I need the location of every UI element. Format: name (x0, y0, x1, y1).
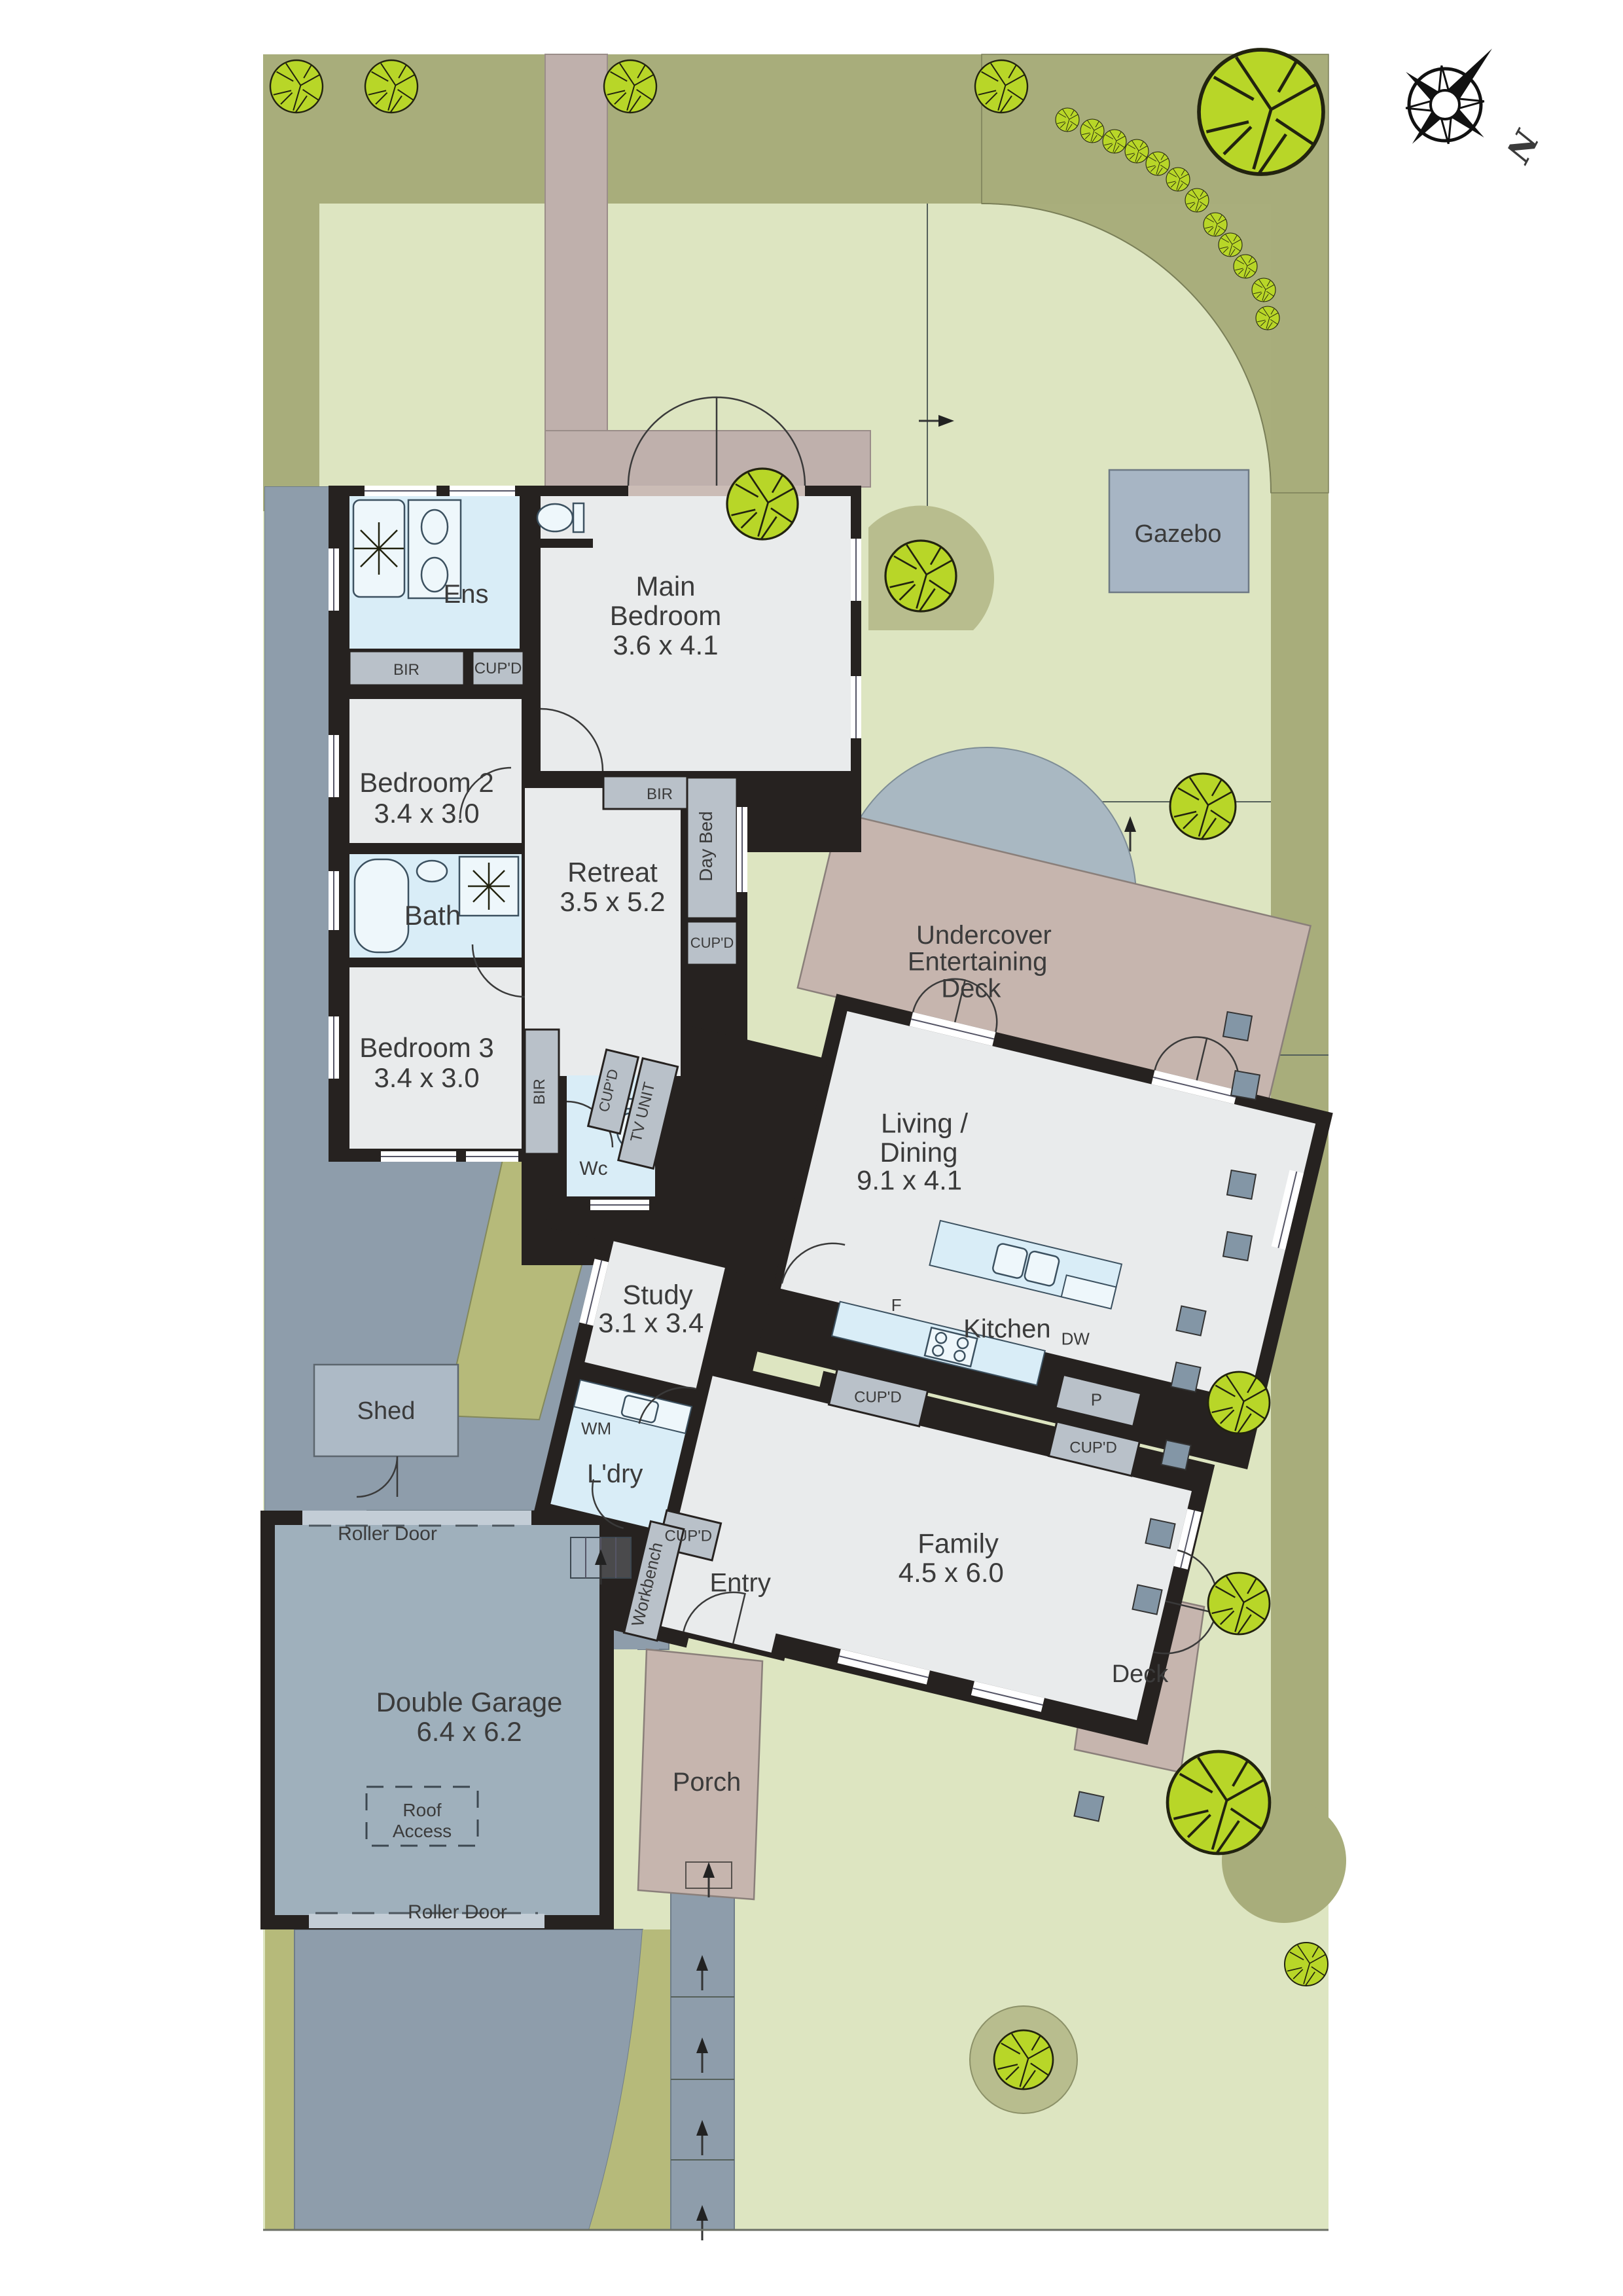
tree-icon (270, 60, 323, 113)
shrub-icon (1256, 306, 1279, 330)
shrub-icon (1125, 139, 1149, 163)
tree-icon (727, 469, 798, 539)
room-label-ens: Ens (444, 580, 489, 609)
room-label-retreat: Retreat (567, 857, 658, 888)
room-dims-study: 3.1 x 3.4 (598, 1307, 704, 1338)
room-label-living2: Dining (880, 1137, 957, 1168)
tree-icon (365, 60, 418, 113)
label-undercover2: Entertaining (908, 948, 1047, 977)
label-bir: BIR (393, 661, 419, 679)
floor-plan-page: Ens Main Bedroom 3.6 x 4.1 BIR CUP'D Bed… (0, 0, 1623, 2296)
tree-icon (1208, 1372, 1270, 1433)
garden-path (545, 54, 607, 486)
room-dims-bedroom3: 3.4 x 3.0 (374, 1062, 479, 1093)
label-bir: BIR (647, 785, 673, 803)
garden-border-left (263, 204, 319, 511)
room-dims-family: 4.5 x 6.0 (899, 1557, 1004, 1588)
shrub-icon (1103, 130, 1126, 153)
room-dims-living: 9.1 x 4.1 (857, 1165, 962, 1196)
shrub-icon (1080, 119, 1104, 143)
tree-icon (1170, 774, 1236, 839)
driveway-verge (265, 1929, 294, 2230)
tree-icon (604, 60, 656, 113)
room-label-kitchen: Kitchen (963, 1315, 1050, 1344)
room-label-porch: Porch (673, 1768, 741, 1797)
shrub-icon (1252, 278, 1275, 302)
room-label-bath: Bath (404, 900, 461, 931)
shrub-icon (1234, 255, 1257, 278)
tree-icon (994, 2030, 1053, 2089)
room-label-main-bedroom: Main (635, 571, 695, 601)
label-cupd: CUP'D (1069, 1439, 1117, 1456)
garage-stairs (571, 1537, 631, 1585)
north-label: N (1497, 122, 1547, 170)
label-gazebo: Gazebo (1134, 520, 1221, 548)
shrub-icon (1204, 213, 1227, 236)
tree-icon (1208, 1573, 1270, 1634)
tree-icon (1199, 50, 1323, 174)
label-undercover3: Deck (941, 975, 1001, 1003)
label-roof-access2: Access (393, 1821, 452, 1841)
room-label-laundry: L'dry (587, 1460, 643, 1488)
room-dims-main-bedroom: 3.6 x 4.1 (613, 630, 718, 660)
shrub-icon (1166, 168, 1190, 191)
label-cupd: CUP'D (474, 660, 522, 677)
rear-path (545, 431, 870, 487)
room-label-living1: Living / (881, 1108, 968, 1139)
driveway (294, 1929, 643, 2230)
tree-icon (975, 60, 1027, 113)
room-label-wc: Wc (579, 1158, 607, 1179)
compass-rose (1366, 13, 1535, 183)
label-bir: BIR (531, 1079, 548, 1105)
label-fridge: F (891, 1295, 902, 1315)
room-label-garage: Double Garage (376, 1687, 563, 1717)
label-wm: WM (581, 1418, 611, 1438)
room-dims-retreat: 3.5 x 5.2 (560, 886, 665, 917)
label-roller-door-top: Roller Door (338, 1523, 437, 1545)
shrub-icon (1146, 152, 1169, 175)
label-dw: DW (1061, 1329, 1090, 1348)
room-label-bedroom2: Bedroom 2 (359, 767, 493, 798)
site-plan: Ens Main Bedroom 3.6 x 4.1 BIR CUP'D Bed… (0, 0, 1623, 2296)
tree-icon (885, 541, 956, 611)
tree-icon (1168, 1751, 1270, 1854)
room-dims-garage: 6.4 x 6.2 (416, 1716, 522, 1747)
label-cupd: CUP'D (854, 1388, 902, 1406)
label-undercover1: Undercover (916, 921, 1052, 950)
room-label-study: Study (622, 1280, 692, 1310)
label-roof-access: Roof (402, 1800, 441, 1820)
label-shed: Shed (357, 1397, 416, 1425)
shrub-icon (1219, 233, 1242, 257)
label-cupd: CUP'D (690, 935, 734, 951)
label-day-bed: Day Bed (696, 811, 716, 881)
shrub-icon (1056, 108, 1079, 132)
room-dims-bedroom2: 3.4 x 3.0 (374, 798, 479, 829)
room-label-family: Family (918, 1528, 999, 1558)
label-roller-door-bottom: Roller Door (408, 1901, 507, 1923)
label-pantry: P (1091, 1390, 1102, 1409)
room-label-bedroom3: Bedroom 3 (359, 1032, 493, 1063)
label-deck: Deck (1112, 1660, 1169, 1688)
tree-icon (1285, 1943, 1328, 1986)
shrub-icon (1185, 188, 1209, 212)
room-label-entry: Entry (709, 1568, 770, 1597)
room-label-main-bedroom2: Bedroom (610, 600, 721, 631)
label-cupd: CUP'D (665, 1528, 713, 1545)
